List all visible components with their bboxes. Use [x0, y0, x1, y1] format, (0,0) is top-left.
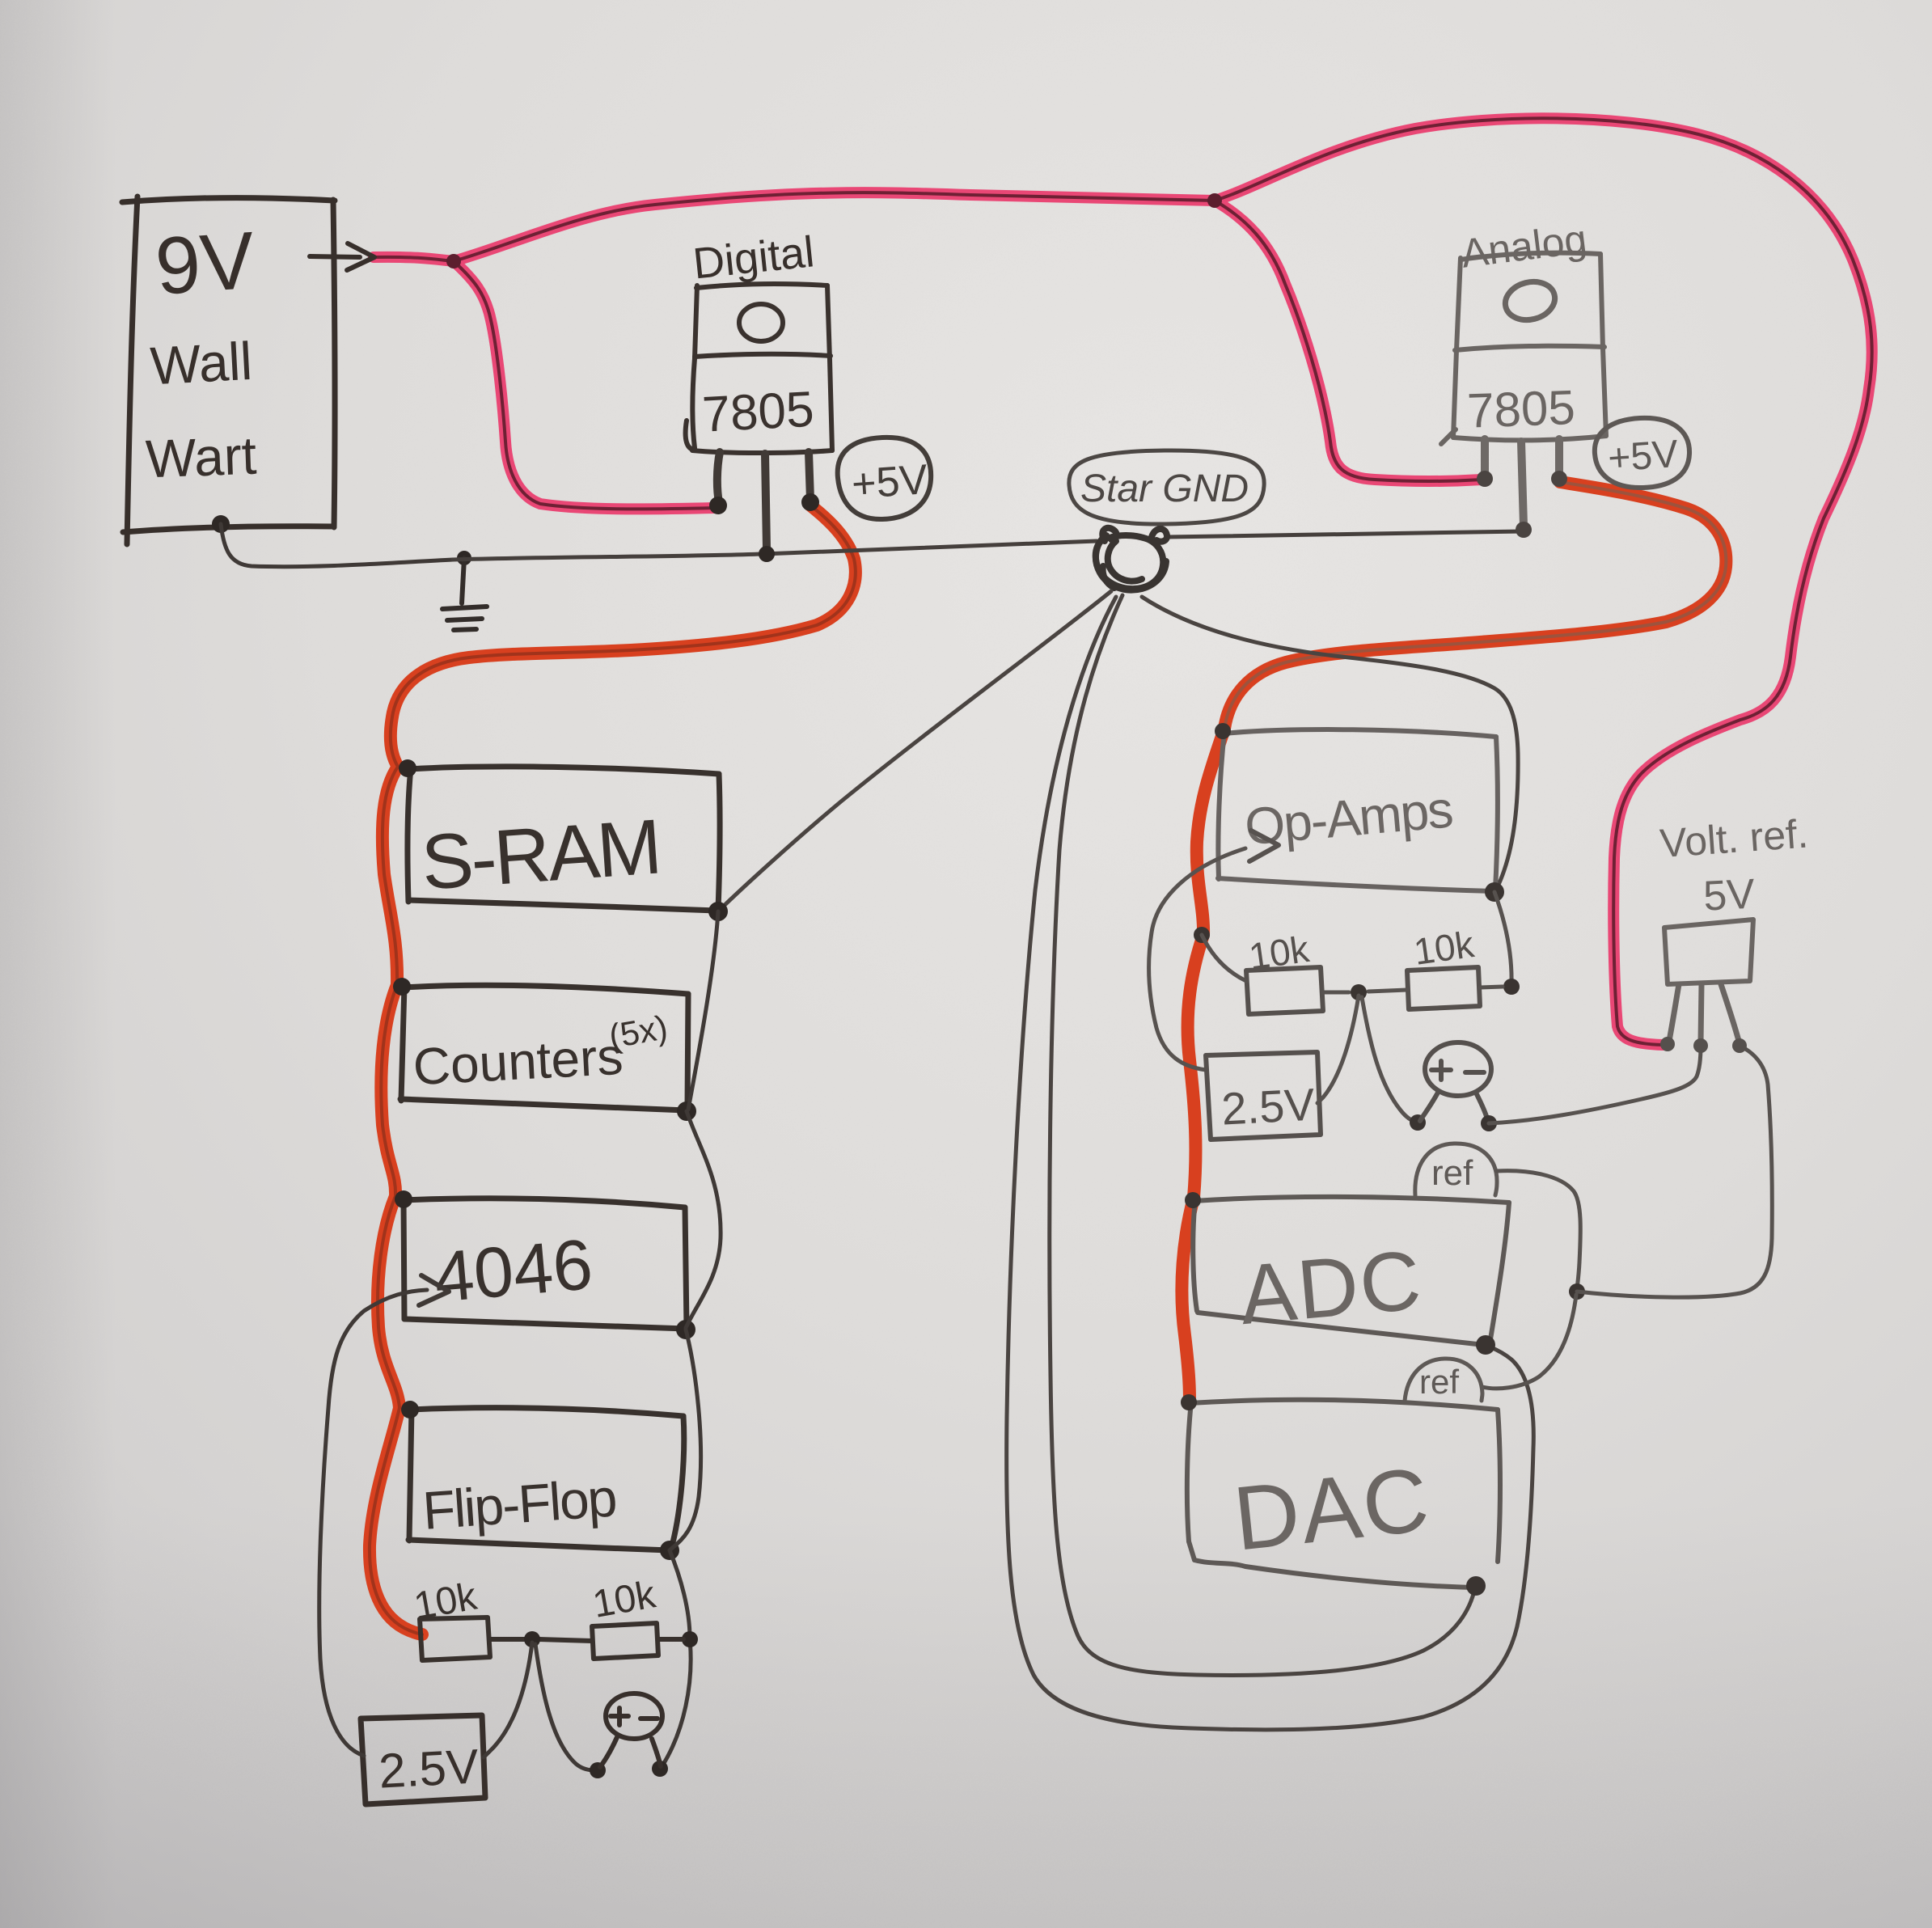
svg-text:7805: 7805	[1466, 380, 1576, 438]
svg-text:2.5V: 2.5V	[378, 1739, 480, 1798]
svg-text:+5V: +5V	[850, 456, 929, 508]
svg-text:Star GND: Star GND	[1080, 467, 1249, 510]
svg-text:7805: 7805	[701, 382, 815, 443]
svg-text:ref: ref	[1431, 1153, 1473, 1193]
svg-text:4046: 4046	[431, 1224, 596, 1317]
svg-text:9V: 9V	[153, 215, 258, 312]
svg-text:10k: 10k	[1246, 928, 1313, 978]
svg-text:5V: 5V	[1702, 870, 1757, 920]
svg-text:2.5V: 2.5V	[1220, 1079, 1317, 1135]
svg-text:ADC: ADC	[1236, 1233, 1426, 1342]
svg-text:Wart: Wart	[145, 425, 257, 489]
svg-text:S-RAM: S-RAM	[419, 803, 662, 906]
svg-text:10k: 10k	[1411, 923, 1478, 973]
svg-text:Counters: Counters	[412, 1027, 624, 1096]
svg-text:DAC: DAC	[1229, 1448, 1435, 1570]
svg-text:ref: ref	[1419, 1363, 1459, 1401]
svg-text:+5V: +5V	[1607, 433, 1680, 480]
svg-text:Wall: Wall	[149, 331, 254, 395]
